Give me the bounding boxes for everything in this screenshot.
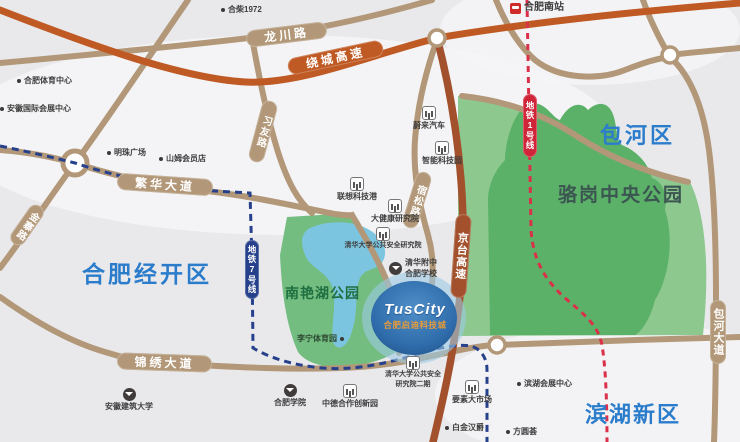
school-icon xyxy=(284,384,297,397)
poi-lining: 李宁体育园 xyxy=(297,334,344,344)
map-canvas: 龙川路 绕城高速 繁华大道 锦绣大道 习友路 宿松路 京台高速 金寨路 包河大道… xyxy=(0,0,740,442)
junction-station xyxy=(662,47,678,63)
poi-dot-icon xyxy=(445,426,449,430)
poi-tsinghua-school-line1: 清华附中 xyxy=(405,258,437,268)
school-icon xyxy=(123,388,136,401)
region-label-jingkai: 合肥经开区 xyxy=(82,255,212,289)
poi-dot-icon xyxy=(517,382,521,386)
poi-dot-icon xyxy=(17,79,21,83)
tuscity-logo-name: TusCity xyxy=(369,301,461,318)
poi-safety-phase2-line2: 研究院二期 xyxy=(396,381,431,390)
poi-hechai1972: 合柴1972 xyxy=(221,5,262,15)
poi-yaosu-market-label: 要素大市场 xyxy=(452,395,492,405)
poi-tsinghua-safety-label: 清华大学公共安全研究院 xyxy=(345,242,422,251)
tuscity-logo-subtitle: 合肥启迪科技城 xyxy=(369,319,461,331)
poi-nio: 蔚来汽车 xyxy=(403,106,455,131)
poi-intl-expo: 安徽国际会展中心 xyxy=(0,104,71,114)
building-icon xyxy=(388,199,402,213)
poi-nio-label: 蔚来汽车 xyxy=(413,121,445,131)
poi-health-institute: 大健康研究院 xyxy=(364,199,426,224)
building-icon xyxy=(435,141,449,155)
train-station-icon xyxy=(510,3,521,14)
region-label-binhu: 滨湖新区 xyxy=(585,397,681,429)
metro-line1-badge-text: 地铁1号线 xyxy=(524,101,536,150)
building-icon xyxy=(376,227,390,241)
building-icon xyxy=(422,106,436,120)
poi-hefei-univ: 合肥学院 xyxy=(263,384,317,408)
metro-line7-badge: 地铁7号线 xyxy=(245,240,259,299)
poi-sports-center-label: 合肥体育中心 xyxy=(24,76,72,86)
poi-anhui-jianzhu: 安徽建筑大学 xyxy=(100,388,158,412)
metro-line7-badge-text: 地铁7号线 xyxy=(246,245,258,294)
poi-dot-icon xyxy=(107,151,111,155)
poi-smart-park: 智能科技园 xyxy=(412,141,472,166)
poi-dot-icon xyxy=(221,8,225,12)
poi-baijin-label: 白金汉爵 xyxy=(452,423,484,433)
road-label-jingtai-text: 京台高速 xyxy=(451,232,470,281)
junction-raocheng xyxy=(429,30,445,46)
poi-dot-icon xyxy=(506,430,510,434)
poi-intl-expo-label: 安徽国际会展中心 xyxy=(7,104,71,114)
junction-jinxiu xyxy=(489,337,505,353)
building-icon xyxy=(350,177,364,191)
poi-safety-phase2-line1: 清华大学公共安全 xyxy=(385,371,441,380)
poi-binhu-expo-label: 滨湖会展中心 xyxy=(524,379,572,389)
poi-hechai1972-label: 合柴1972 xyxy=(228,5,262,15)
tuscity-logo: TusCity 合肥启迪科技城 xyxy=(369,301,461,331)
poi-mingzhu: 明珠广场 xyxy=(107,148,146,158)
poi-fangyuan: 方圆荟 xyxy=(506,427,537,437)
road-label-baohe-avenue: 包河大道 xyxy=(710,300,726,364)
school-icon xyxy=(389,262,402,275)
poi-sino-german: 中德合作创新园 xyxy=(314,384,386,409)
poi-hefei-univ-label: 合肥学院 xyxy=(274,398,306,408)
poi-smart-park-label: 智能科技园 xyxy=(422,156,462,166)
poi-sams: 山姆会员店 xyxy=(159,154,206,164)
building-icon xyxy=(465,380,479,394)
poi-mingzhu-label: 明珠广场 xyxy=(114,148,146,158)
poi-dot-icon xyxy=(340,337,344,341)
road-label-jinxiu: 锦绣大道 xyxy=(117,352,213,372)
poi-yaosu-market: 要素大市场 xyxy=(445,380,499,405)
poi-tsinghua-safety: 清华大学公共安全研究院 xyxy=(337,227,429,251)
building-icon xyxy=(343,384,357,398)
poi-anhui-jianzhu-label: 安徽建筑大学 xyxy=(105,402,153,412)
region-label-baohe: 包河区 xyxy=(600,118,675,150)
poi-south-station-label: 合肥南站 xyxy=(524,2,564,15)
road-label-baohe-avenue-text: 包河大道 xyxy=(710,308,726,356)
poi-health-institute-label: 大健康研究院 xyxy=(371,214,419,224)
poi-fangyuan-label: 方圆荟 xyxy=(513,427,537,437)
building-icon xyxy=(406,356,420,370)
poi-sams-label: 山姆会员店 xyxy=(166,154,206,164)
region-label-luogang-park: 骆岗中央公园 xyxy=(558,180,684,207)
region-label-nanyanhu-park: 南艳湖公园 xyxy=(285,283,360,303)
poi-tsinghua-school-line2: 合肥学校 xyxy=(405,269,437,279)
poi-sports-center: 合肥体育中心 xyxy=(17,76,72,86)
poi-tsinghua-school: 清华附中 合肥学校 xyxy=(389,258,437,279)
poi-dot-icon xyxy=(159,157,163,161)
poi-lining-label: 李宁体育园 xyxy=(297,334,337,344)
poi-dot-icon xyxy=(0,107,4,111)
poi-binhu-expo: 滨湖会展中心 xyxy=(517,379,572,389)
metro-line1-badge: 地铁1号线 xyxy=(523,94,537,157)
road-label-jinxiu-text: 锦绣大道 xyxy=(134,353,195,372)
poi-south-station: 合肥南站 xyxy=(510,2,564,15)
poi-sino-german-label: 中德合作创新园 xyxy=(322,399,378,409)
poi-baijin: 白金汉爵 xyxy=(445,423,484,433)
